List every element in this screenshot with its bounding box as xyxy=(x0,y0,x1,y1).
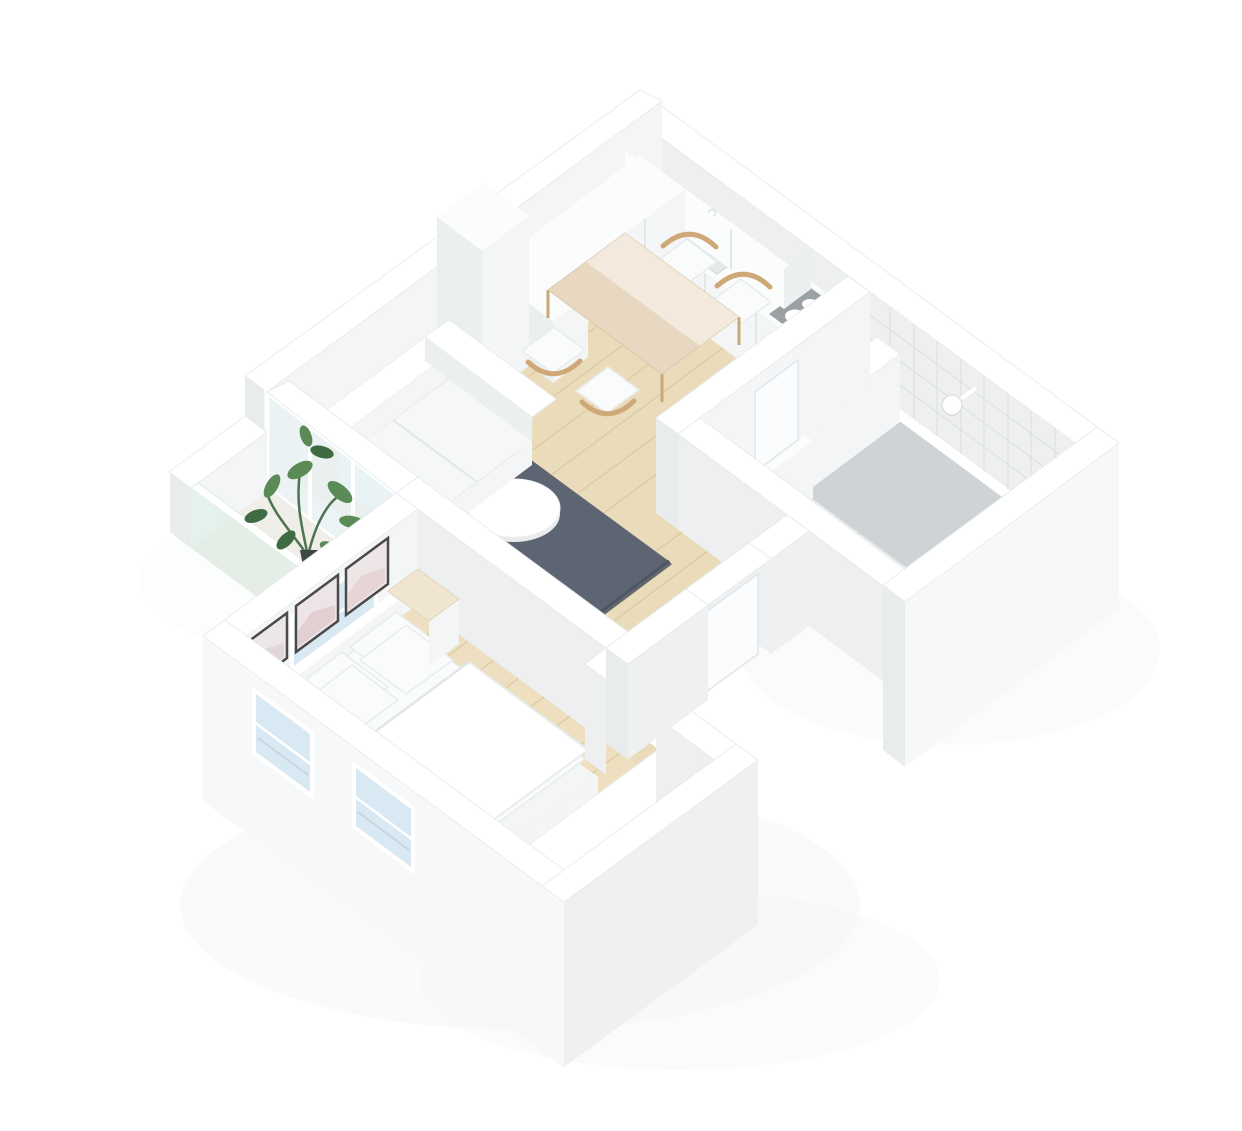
entry-wall-left-segment xyxy=(585,664,606,775)
entry-side-wall-cap xyxy=(606,648,628,759)
bathroom-right-wall-end xyxy=(883,585,905,767)
apartment-isometric-scene xyxy=(0,0,1242,1131)
bathroom-left-wall-cap xyxy=(656,418,678,529)
floor-plan-render xyxy=(0,0,1242,1131)
shower-head-disc xyxy=(942,395,962,415)
